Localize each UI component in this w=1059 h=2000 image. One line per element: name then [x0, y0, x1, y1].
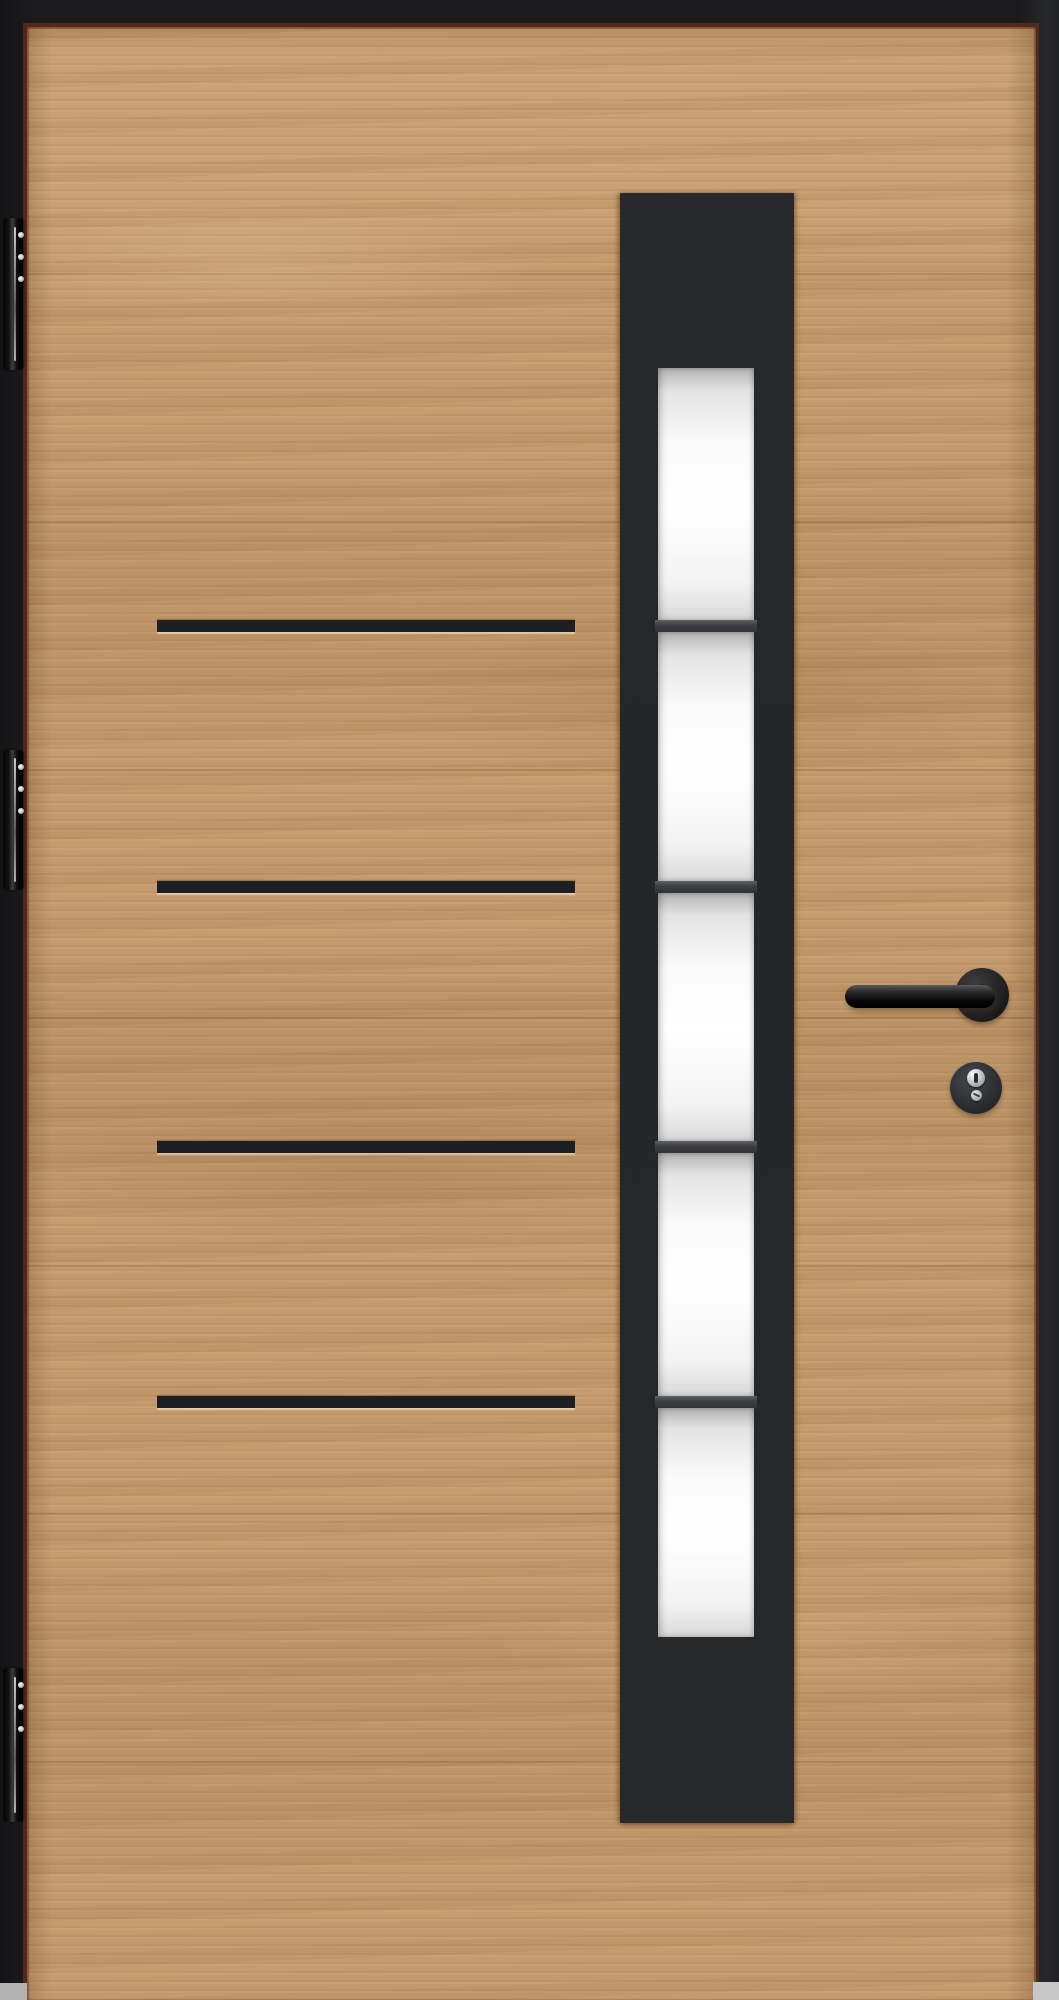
inlay-strip-3 — [157, 1141, 575, 1153]
hinge-screw-icon — [18, 764, 24, 770]
inlay-strip-2 — [157, 881, 575, 893]
lever-handle — [845, 985, 995, 1008]
hinge-screw-icon — [18, 254, 24, 260]
oak-door-slab — [27, 27, 1036, 2000]
hinge-bottom — [3, 1668, 23, 1822]
inlay-strip-4 — [157, 1396, 575, 1408]
glazing-divider-4 — [655, 1396, 757, 1408]
hinge-screw-icon — [18, 232, 24, 238]
hinge-screw-icon — [18, 276, 24, 282]
hinge-screw-icon — [18, 1726, 24, 1732]
glazing-divider-1 — [655, 620, 757, 632]
inlay-strip-1 — [157, 620, 575, 632]
glass-pane-4 — [658, 1153, 754, 1396]
floor-sliver-left — [0, 1983, 27, 2000]
lock-cylinder-screw-icon — [971, 1090, 982, 1101]
hinge-top — [3, 218, 23, 370]
hinge-screw-icon — [18, 1704, 24, 1710]
glazing-divider-2 — [655, 881, 757, 893]
glass-column — [658, 368, 754, 1637]
door-photo — [0, 0, 1059, 2000]
glass-pane-5 — [658, 1408, 754, 1637]
hinge-screw-icon — [18, 786, 24, 792]
hinge-screw-icon — [18, 808, 24, 814]
glass-pane-3 — [658, 893, 754, 1141]
glass-pane-1 — [658, 368, 754, 620]
hinge-screw-icon — [18, 1682, 24, 1688]
floor-sliver-right — [1033, 1982, 1059, 2000]
glazing-divider-3 — [655, 1141, 757, 1153]
lock-cylinder-icon — [967, 1069, 985, 1087]
lock-escutcheon — [950, 1062, 1002, 1114]
glazing-panel — [620, 193, 794, 1823]
glass-pane-2 — [658, 632, 754, 881]
hinge-middle — [3, 750, 23, 890]
